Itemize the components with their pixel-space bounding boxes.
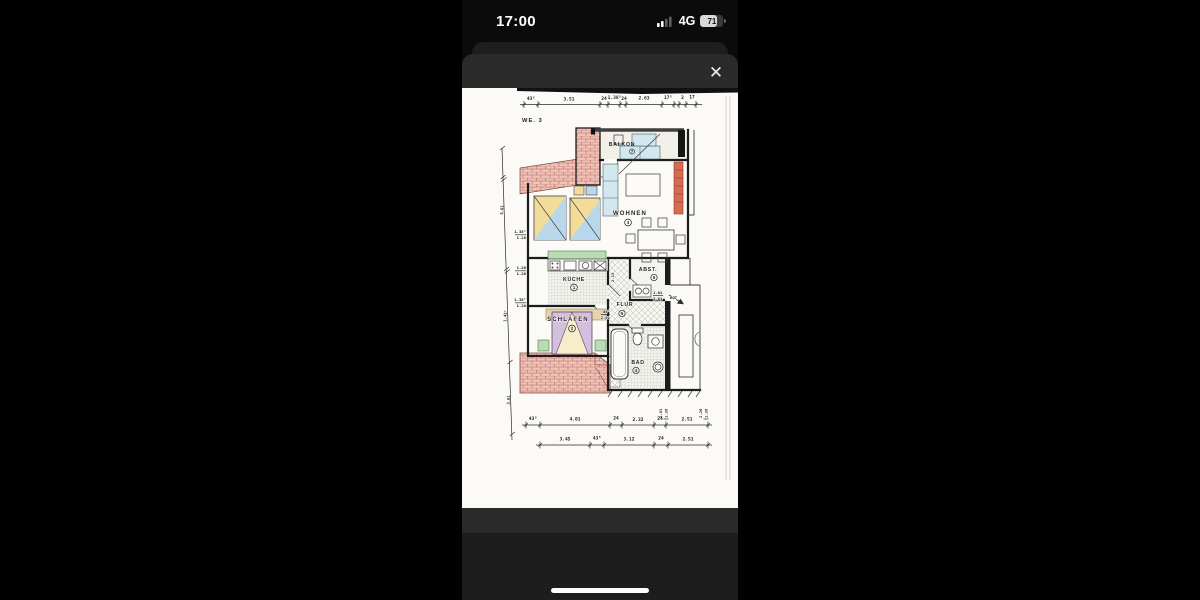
coffee-table-icon bbox=[626, 174, 660, 196]
phone-screen: 17:00 4G 71 ✕ bbox=[462, 0, 738, 600]
dim-label: 3.12 bbox=[623, 437, 634, 443]
dim-label: 1.26 bbox=[517, 235, 527, 240]
status-time: 17:00 bbox=[496, 13, 536, 30]
abst-fixtures bbox=[633, 285, 651, 297]
dim-label: 1.26 bbox=[517, 265, 527, 270]
dim-label: 24 bbox=[613, 416, 619, 422]
room-name: BAD bbox=[631, 360, 644, 366]
dim-label: 1.38⁵ bbox=[514, 297, 526, 302]
dim-label: 1.26 bbox=[703, 408, 708, 418]
terrace-hatch bbox=[520, 353, 610, 393]
dim-label: 2.51 bbox=[682, 437, 693, 443]
room-name: BALKON bbox=[609, 142, 635, 148]
floorplan-image[interactable]: 43⁵ 3.51 24 1.38⁵ 24 2.63 17⁵ 2 17 WE. 3 bbox=[462, 88, 738, 508]
dim-label: 1.38⁵ bbox=[514, 229, 526, 234]
sofa-icon bbox=[603, 164, 618, 216]
chimney bbox=[576, 128, 600, 185]
dim-label: 2.01 bbox=[601, 315, 611, 320]
room-name: WOHNEN bbox=[613, 211, 647, 217]
status-right-cluster: 4G 71 bbox=[657, 14, 726, 28]
dim-label: 2.26 bbox=[698, 408, 703, 418]
dim-label: 43⁵ bbox=[529, 416, 538, 422]
battery-icon: 71 bbox=[700, 15, 726, 27]
dim-label: 43⁵ bbox=[527, 96, 536, 102]
dim-label: ROT bbox=[670, 295, 678, 300]
kueche-window-sill bbox=[548, 251, 606, 260]
room-name: ABST. bbox=[639, 267, 658, 273]
nightstand-icon bbox=[595, 340, 606, 351]
dim-label: 17⁵ bbox=[664, 95, 673, 101]
dim-label: 1.38⁵ bbox=[608, 95, 622, 101]
toilet-icon bbox=[632, 328, 643, 333]
dim-label: 3.45 bbox=[559, 437, 570, 443]
kueche-counter bbox=[548, 259, 608, 271]
dining-table-icon bbox=[638, 230, 674, 250]
dim-label: 24 bbox=[601, 96, 607, 102]
round-basin-icon bbox=[653, 362, 663, 372]
room-name: FLUR bbox=[617, 302, 634, 308]
screenshot-canvas: 17:00 4G 71 ✕ bbox=[0, 0, 1200, 600]
battery-nub bbox=[724, 19, 726, 23]
network-type: 4G bbox=[679, 14, 696, 28]
dim-label: 2.63 bbox=[638, 95, 649, 101]
dim-label: 17 bbox=[689, 95, 695, 101]
dim-label: 43⁵ bbox=[593, 436, 602, 442]
dim-label: 24 bbox=[621, 96, 627, 102]
dim-label: 1.26 bbox=[517, 271, 527, 276]
washbasin-icon bbox=[648, 335, 663, 348]
bench-icon bbox=[632, 134, 656, 146]
dim-label: 2.01 bbox=[653, 296, 663, 301]
dim-label: 4.01 bbox=[569, 417, 580, 423]
room-name: KÜCHE bbox=[563, 276, 585, 283]
dim-label: 5.61 bbox=[499, 205, 504, 215]
dim-label: 3.61 bbox=[506, 395, 511, 405]
dim-label: 88⁵ bbox=[603, 309, 610, 314]
dim-label: 1.26 bbox=[517, 303, 527, 308]
dim-label: 2.32 bbox=[632, 417, 643, 423]
unit-label: WE. 3 bbox=[522, 118, 543, 124]
room-name: SCHLAFEN bbox=[547, 317, 588, 323]
dim-label: 2.15 bbox=[610, 272, 615, 282]
home-indicator[interactable] bbox=[551, 588, 649, 593]
dim-label: 24 bbox=[658, 436, 664, 442]
status-bar: 17:00 4G 71 bbox=[462, 0, 738, 42]
entry-door-leaf bbox=[679, 315, 693, 377]
nightstand-icon bbox=[538, 340, 549, 351]
dim-label: 2.51 bbox=[681, 417, 692, 423]
dim-label: 2 bbox=[681, 95, 684, 101]
close-button[interactable]: ✕ bbox=[703, 60, 729, 86]
dim-label: 1.26 bbox=[663, 408, 668, 418]
dim-label: 3.51 bbox=[563, 96, 574, 102]
dim-label: 1.01 bbox=[658, 408, 663, 418]
dim-label: 1.01 bbox=[653, 290, 663, 295]
image-viewer-sheet: ✕ bbox=[462, 54, 738, 533]
battery-percent: 71 bbox=[700, 15, 723, 27]
floorplan-drawing: 43⁵ 3.51 24 1.38⁵ 24 2.63 17⁵ 2 17 WE. 3 bbox=[462, 88, 738, 508]
dim-label: 1.43⁵ bbox=[502, 310, 507, 322]
cellular-signal-icon bbox=[657, 16, 674, 27]
